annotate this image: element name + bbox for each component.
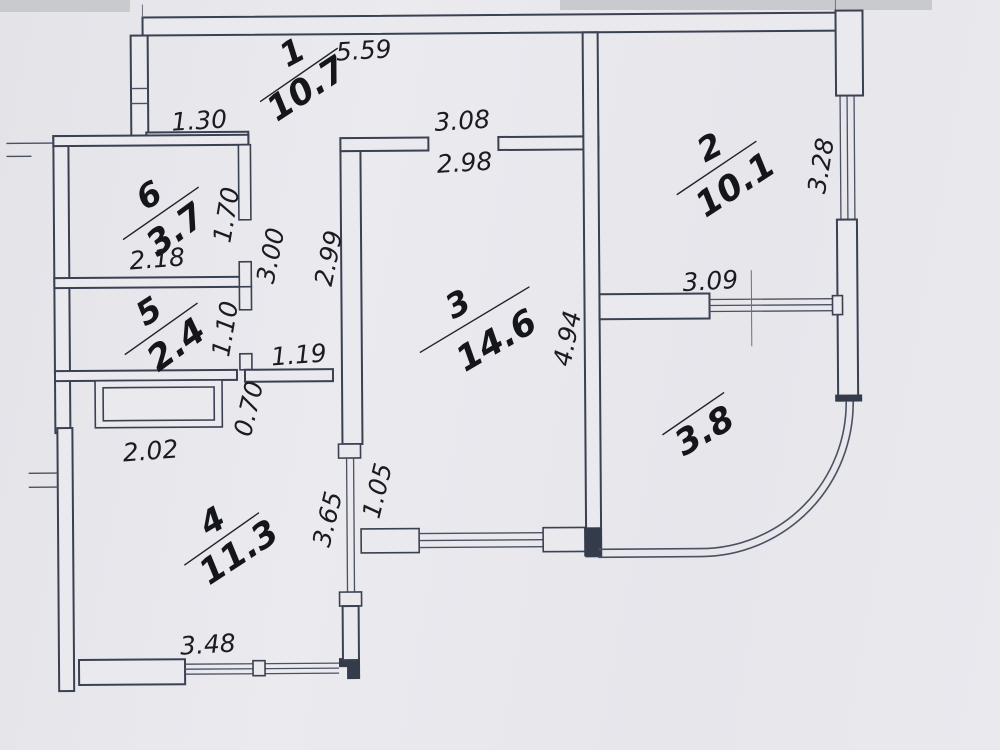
window-end-cap <box>832 296 842 315</box>
window-cap-bottom <box>340 592 362 606</box>
wall-room6-top <box>53 135 248 146</box>
window-room3-bottom <box>419 533 543 534</box>
dim-corridor-len-left: 3.00 <box>251 225 291 285</box>
wall-room4-left <box>57 428 74 691</box>
wall-room3-bottom-cap-left <box>361 529 419 553</box>
dim-room4-bottom-width: 3.48 <box>179 628 236 660</box>
window-room2-bottom <box>710 305 833 306</box>
dim-room5-side: 1.10 <box>206 299 244 359</box>
wall-room2-right-top <box>835 10 863 95</box>
room-3-number: 3 <box>438 281 477 326</box>
wall-room4-right-lower <box>343 606 359 660</box>
photo-strip-left <box>0 0 130 12</box>
wall-room5-right-b <box>240 354 252 370</box>
photo-edge-strips <box>0 0 932 12</box>
window-cap-top <box>338 444 360 458</box>
dim-room3-top-inner: 2.98 <box>436 147 493 179</box>
photo-strip-right <box>560 0 932 10</box>
window-room2-right <box>854 96 855 220</box>
balcony-area: 3.8 <box>668 398 742 464</box>
dim-room3-side: 4.94 <box>547 308 587 368</box>
walls <box>5 0 867 691</box>
window-room3-bottom <box>419 547 543 548</box>
wall-room6-bottom <box>54 277 249 288</box>
corner-room4-bottom-right <box>339 658 360 679</box>
wall-right-end-cap <box>835 394 862 401</box>
dim-room3-window-side: 1.05 <box>357 460 398 521</box>
floor-plan-drawing: 1 10.7 2 10.1 3 14.6 4 11.3 5 2.4 6 3.7 … <box>0 0 1000 750</box>
window-room2-bottom <box>710 311 833 312</box>
dim-niche-depth: 0.70 <box>228 378 269 439</box>
wall-room3-bottom-cap-right <box>543 527 586 551</box>
window-room3-bottom <box>419 540 543 541</box>
dim-balcony-width: 3.09 <box>682 265 739 297</box>
wall-room2-bottom-block <box>599 294 709 320</box>
dim-room4-top-width: 2.02 <box>122 434 180 467</box>
wall-room3-left <box>340 151 362 444</box>
wall-room6-right-b <box>239 262 251 287</box>
dim-extension-line <box>751 270 752 346</box>
window-room2-right <box>840 96 841 220</box>
wall-top <box>142 12 859 35</box>
wall-room3-top-a <box>340 137 428 151</box>
room-6-number: 6 <box>129 173 169 218</box>
dim-corridor-width: 1.19 <box>270 338 328 371</box>
dim-room2-side: 3.28 <box>802 136 840 196</box>
window-room4-right <box>354 458 355 592</box>
window-post <box>253 661 265 676</box>
dim-room4-side: 3.65 <box>307 489 348 550</box>
dim-room6-width: 2.18 <box>128 242 186 275</box>
window-room2-right <box>847 96 848 220</box>
dim-top-width: 5.59 <box>335 34 392 66</box>
dim-room3-top-outer: 3.08 <box>434 105 491 137</box>
window-room4-right <box>347 458 348 592</box>
niche-inner <box>103 387 214 421</box>
wall-corridor-bottom <box>245 369 333 382</box>
corner-balcony-left <box>584 527 601 556</box>
dim-hall-left: 1.30 <box>171 104 228 136</box>
window-room2-bottom <box>709 299 832 300</box>
wall-room4-bottom-block <box>79 659 185 685</box>
dim-room6-side: 1.70 <box>207 185 245 245</box>
floor-plan-page: 1 10.7 2 10.1 3 14.6 4 11.3 5 2.4 6 3.7 … <box>0 0 1000 750</box>
